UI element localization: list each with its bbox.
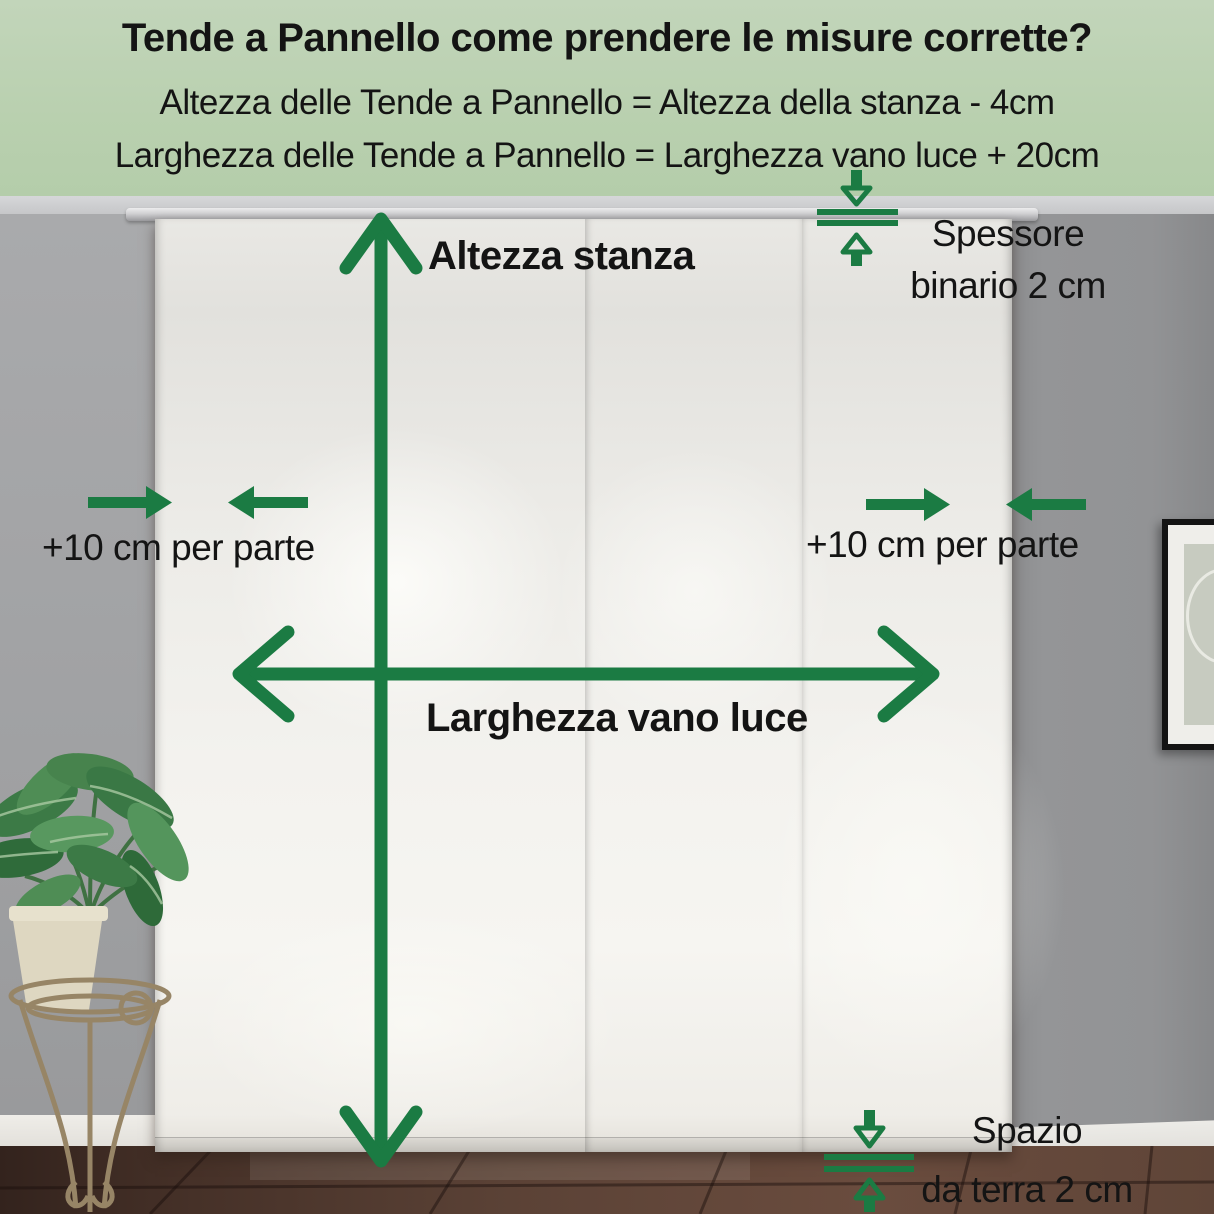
curtain-panel: [802, 219, 1012, 1152]
frame-mat: [1168, 525, 1214, 744]
side-allowance-right-label: +10 cm per parte: [806, 524, 1079, 566]
potted-plant: [0, 746, 205, 1214]
window-width-label: Larghezza vano luce: [426, 696, 808, 741]
panel-curtains: [155, 219, 1012, 1152]
side-allowance-left-label: +10 cm per parte: [42, 527, 315, 569]
frame-artwork: [1184, 544, 1214, 725]
picture-frame: [1162, 519, 1214, 750]
curtain-hem: [155, 1137, 1012, 1152]
artwork-circle: [1186, 568, 1214, 664]
track-thickness-label: Spessore binario 2 cm: [874, 208, 1142, 312]
infographic-canvas: Tende a Pannello come prendere le misure…: [0, 0, 1214, 1214]
floor-gap-label: Spazio da terra 2 cm: [898, 1101, 1156, 1214]
width-formula: Larghezza delle Tende a Pannello = Largh…: [0, 136, 1214, 176]
floor-gap-line2: da terra 2 cm: [898, 1160, 1156, 1214]
page-title: Tende a Pannello come prendere le misure…: [0, 16, 1214, 61]
curtain-panel: [378, 219, 585, 1152]
room-height-label: Altezza stanza: [428, 234, 694, 279]
height-formula: Altezza delle Tende a Pannello = Altezza…: [0, 83, 1214, 123]
header-banner: Tende a Pannello come prendere le misure…: [0, 0, 1214, 196]
curtain-panel: [585, 219, 802, 1152]
floor-gap-line1: Spazio: [898, 1101, 1156, 1160]
track-thickness-line1: Spessore: [874, 208, 1142, 260]
track-thickness-line2: binario 2 cm: [874, 260, 1142, 312]
plant-stand: [11, 980, 169, 1212]
